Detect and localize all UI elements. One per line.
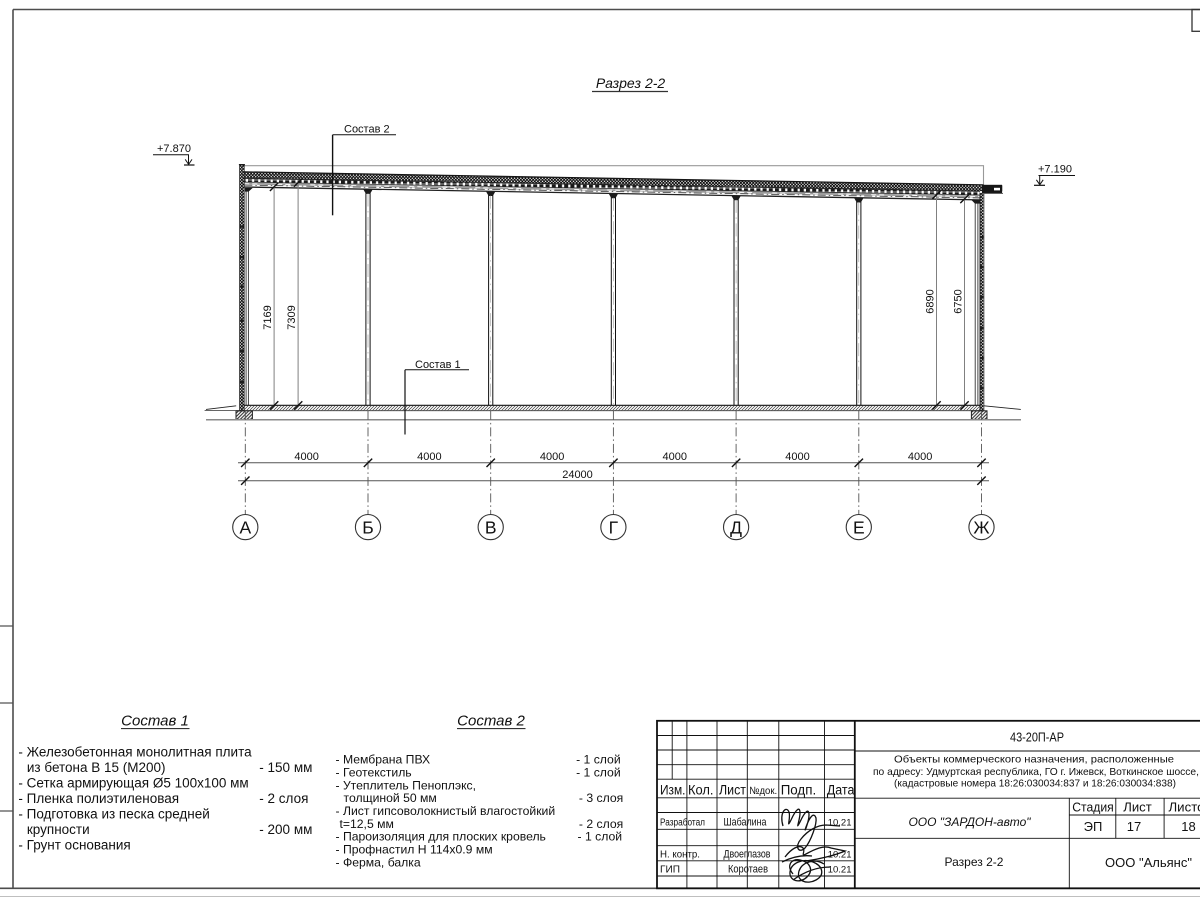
svg-text:Н. контр.: Н. контр. <box>660 850 700 861</box>
svg-text:4000: 4000 <box>540 451 564 463</box>
svg-text:- Грунт основания: - Грунт основания <box>18 838 130 853</box>
svg-text:- Лист гипсоволокнистый влагос: - Лист гипсоволокнистый влагостойкий <box>336 804 556 818</box>
svg-text:Состав 2: Состав 2 <box>344 124 390 136</box>
svg-text:Двоеглазов: Двоеглазов <box>724 849 771 861</box>
svg-text:- Железобетонная монолитная п: - Железобетонная монолитная плита <box>18 744 252 759</box>
svg-text:7309: 7309 <box>286 305 298 329</box>
svg-text:43-20П-АР: 43-20П-АР <box>1010 731 1064 745</box>
svg-text:Ж: Ж <box>973 518 989 538</box>
svg-text:А: А <box>239 518 251 538</box>
svg-text:4000: 4000 <box>663 451 687 463</box>
svg-text:Состав 1: Состав 1 <box>415 359 461 371</box>
svg-text:17: 17 <box>1127 819 1141 834</box>
svg-text:- Пароизоляция для плоских кро: - Пароизоляция для плоских кровель <box>336 830 546 844</box>
svg-text:- 200 мм: - 200 мм <box>259 822 312 837</box>
svg-text:ООО "ЗАРДОН-авто": ООО "ЗАРДОН-авто" <box>908 815 1031 829</box>
svg-text:Объекты коммерческого назначен: Объекты коммерческого назначения, распол… <box>894 754 1174 766</box>
svg-text:Изм.: Изм. <box>660 783 686 798</box>
svg-text:- 150 мм: - 150 мм <box>259 760 312 775</box>
svg-text:- 1 слой: - 1 слой <box>578 830 623 844</box>
svg-text:4000: 4000 <box>417 451 441 463</box>
svg-text:4000: 4000 <box>908 451 932 463</box>
svg-text:(кадастровые номера 18:26:0300: (кадастровые номера 18:26:030034:837 и 1… <box>894 778 1176 790</box>
svg-text:№док.: №док. <box>749 785 777 797</box>
svg-text:10.21: 10.21 <box>828 818 852 829</box>
svg-text:В: В <box>485 518 497 538</box>
svg-text:- Сетка армирующая Ø5 100х100: - Сетка армирующая Ø5 100х100 мм <box>18 775 248 790</box>
svg-text:Б: Б <box>362 518 373 538</box>
svg-text:18: 18 <box>1181 819 1195 834</box>
svg-text:Е: Е <box>853 518 865 538</box>
svg-text:Дата: Дата <box>827 783 855 798</box>
svg-text:Состав 1: Состав 1 <box>121 713 189 730</box>
svg-text:ЭП: ЭП <box>1084 819 1103 834</box>
svg-text:из бетона В 15 (М200): из бетона В 15 (М200) <box>27 760 166 775</box>
svg-text:- Ферма, балка: - Ферма, балка <box>336 855 421 869</box>
svg-text:ООО "Альянс": ООО "Альянс" <box>1105 855 1192 870</box>
svg-text:ГИП: ГИП <box>660 865 680 876</box>
svg-text:- 1 слой: - 1 слой <box>576 766 621 780</box>
svg-text:- 2 слоя: - 2 слоя <box>259 791 308 806</box>
svg-text:Д: Д <box>730 518 742 538</box>
svg-text:4000: 4000 <box>785 451 809 463</box>
svg-text:7169: 7169 <box>262 305 274 329</box>
svg-text:Состав 2: Состав 2 <box>457 713 525 730</box>
svg-text:- Пленка полиэтиленовая: - Пленка полиэтиленовая <box>18 791 179 806</box>
svg-text:Стадия: Стадия <box>1072 801 1114 815</box>
svg-text:Коротаев: Коротаев <box>728 864 768 876</box>
svg-text:Лист: Лист <box>719 783 746 798</box>
svg-text:Лист: Лист <box>1123 801 1152 815</box>
svg-text:Г: Г <box>609 518 619 538</box>
svg-text:Разрез 2-2: Разрез 2-2 <box>596 75 666 91</box>
svg-text:- 3 слоя: - 3 слоя <box>579 791 623 805</box>
svg-text:по адресу: Удмуртская республи: по адресу: Удмуртская республика, ГО г. … <box>873 766 1199 778</box>
svg-text:4000: 4000 <box>294 451 318 463</box>
svg-text:10.21: 10.21 <box>828 850 852 861</box>
svg-text:Листов: Листов <box>1169 801 1200 815</box>
svg-text:Разработал: Разработал <box>660 817 705 829</box>
svg-text:- Подготовка из песка средней: - Подготовка из песка средней <box>18 807 209 822</box>
svg-text:+7.870: +7.870 <box>157 143 191 155</box>
svg-text:6890: 6890 <box>924 289 936 313</box>
svg-text:+7.190: +7.190 <box>1038 163 1072 175</box>
svg-text:крупности: крупности <box>27 822 90 837</box>
svg-text:10.21: 10.21 <box>828 865 852 876</box>
svg-text:24000: 24000 <box>562 469 593 481</box>
svg-text:- Утеплитель Пеноплэкс,: - Утеплитель Пеноплэкс, <box>336 778 477 792</box>
svg-text:6750: 6750 <box>952 289 964 313</box>
svg-text:Кол.: Кол. <box>688 783 714 798</box>
svg-text:Подп.: Подп. <box>781 783 817 798</box>
svg-text:Шабалина: Шабалина <box>724 817 767 829</box>
svg-text:Разрез 2-2: Разрез 2-2 <box>945 855 1004 869</box>
svg-text:- Мембрана ПВХ: - Мембрана ПВХ <box>336 753 431 767</box>
svg-text:- 1 слой: - 1 слой <box>576 753 621 767</box>
